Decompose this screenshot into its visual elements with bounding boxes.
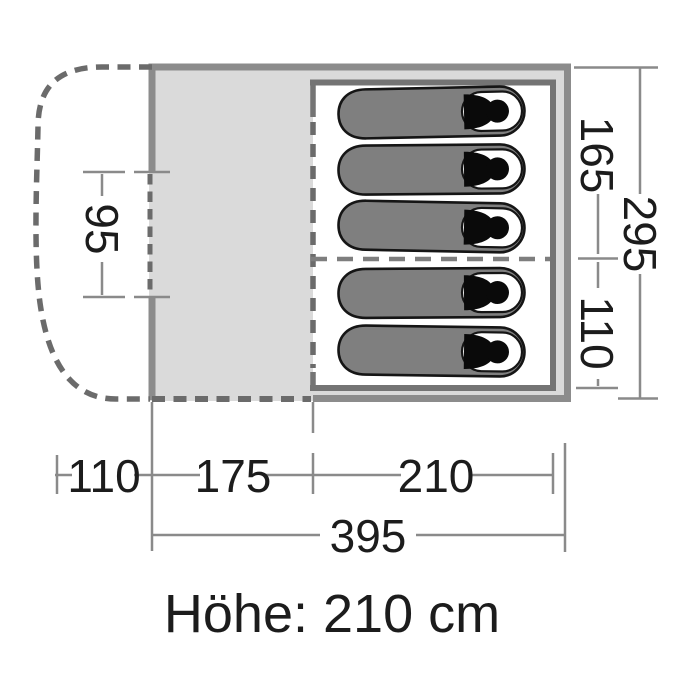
sleeping-bags (338, 86, 525, 377)
label-cabin-upper-depth: 165 (571, 117, 623, 194)
label-cabin-lower-depth: 110 (571, 296, 623, 369)
sleeping-bag-1 (338, 86, 525, 139)
sleeping-bag-4 (338, 268, 524, 318)
sleeping-bag-2 (338, 144, 524, 195)
label-total-length: 395 (330, 510, 407, 562)
label-door-width: 95 (76, 203, 128, 254)
tent-floorplan-diagram: 95 165 110 295 110 175 210 395 Höhe: 210… (0, 0, 700, 700)
sleeping-bag-3 (338, 200, 525, 253)
label-cabin-length: 210 (398, 450, 475, 502)
floorplan-canvas: 95 165 110 295 110 175 210 395 Höhe: 210… (0, 0, 700, 700)
label-porch-length: 110 (67, 450, 140, 502)
label-living-length: 175 (195, 450, 272, 502)
sleeping-bag-5 (338, 325, 525, 377)
label-total-depth: 295 (614, 196, 666, 273)
height-note: Höhe: 210 cm (164, 584, 500, 644)
